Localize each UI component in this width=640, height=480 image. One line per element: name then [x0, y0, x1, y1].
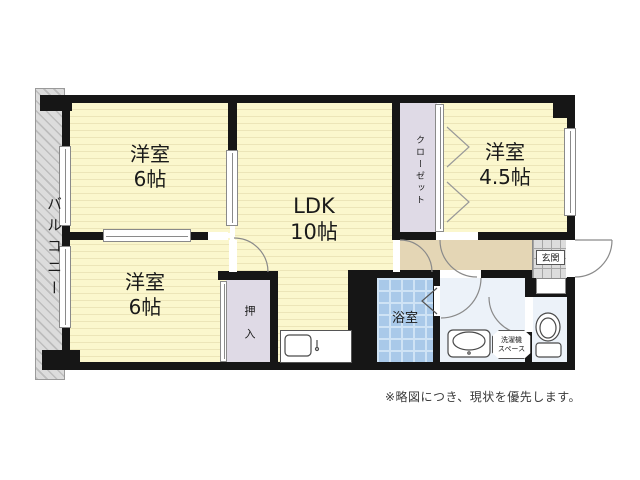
sliding-window: [103, 229, 191, 242]
entrance-label: 玄関: [536, 250, 565, 265]
wall: [270, 280, 278, 370]
closet-label: クローゼット: [410, 122, 424, 220]
bath-label: 浴室: [377, 311, 433, 327]
door-opening: [393, 240, 400, 272]
wall: [392, 95, 400, 240]
room-name: 洋室: [80, 142, 220, 167]
kitchen-counter: [280, 330, 352, 363]
laundry-line2: スペース: [498, 345, 525, 354]
corner-pillar: [42, 350, 80, 370]
oshiire-label: 押入: [241, 297, 256, 359]
balcony-label: バルコニー: [37, 158, 63, 338]
bedroom-bottom-label: 洋室 6帖: [75, 270, 215, 320]
entrance-door-arc: [575, 240, 612, 277]
room-name: 洋室: [75, 270, 215, 295]
door-opening: [229, 240, 237, 272]
room-name: LDK: [249, 193, 379, 219]
room-size: 6帖: [75, 295, 215, 320]
sliding-door: [226, 150, 238, 226]
laundry-line1: 洗濯機: [501, 336, 522, 345]
entrance-door-opening: [566, 240, 576, 277]
room-name: 洋室: [443, 140, 567, 165]
wall: [62, 362, 575, 370]
wall: [228, 95, 237, 152]
disclaimer-text: ※略図につき、現状を優先します。: [385, 388, 581, 405]
entrance-step: [536, 278, 566, 294]
bedroom-right-label: 洋室 4.5帖: [443, 140, 567, 190]
hallway-floor: [398, 240, 532, 272]
door-opening: [434, 286, 440, 316]
room-size: 6帖: [80, 167, 220, 192]
door-opening: [525, 297, 533, 332]
floorplan-canvas: バルコニー 洋室 6帖 LDK 10帖 洋室 4.5帖 洋室 6帖 浴室 押入 …: [0, 0, 640, 480]
wall: [62, 95, 575, 103]
door-opening: [440, 270, 481, 278]
door-opening: [208, 232, 228, 240]
oshiire-sliding-door: [220, 281, 227, 362]
wall: [392, 232, 575, 240]
laundry-space-label: 洗濯機 スペース: [492, 330, 531, 359]
room-size: 10帖: [249, 219, 379, 245]
room-size: 4.5帖: [443, 165, 567, 190]
toilet-room-floor: [532, 297, 567, 362]
wall: [348, 270, 377, 370]
ldk-label: LDK 10帖: [249, 193, 379, 246]
wall: [218, 271, 278, 280]
corner-pillar: [40, 95, 72, 111]
corner-pillar: [553, 103, 575, 118]
bedroom-top-label: 洋室 6帖: [80, 142, 220, 192]
door-opening: [436, 232, 478, 240]
